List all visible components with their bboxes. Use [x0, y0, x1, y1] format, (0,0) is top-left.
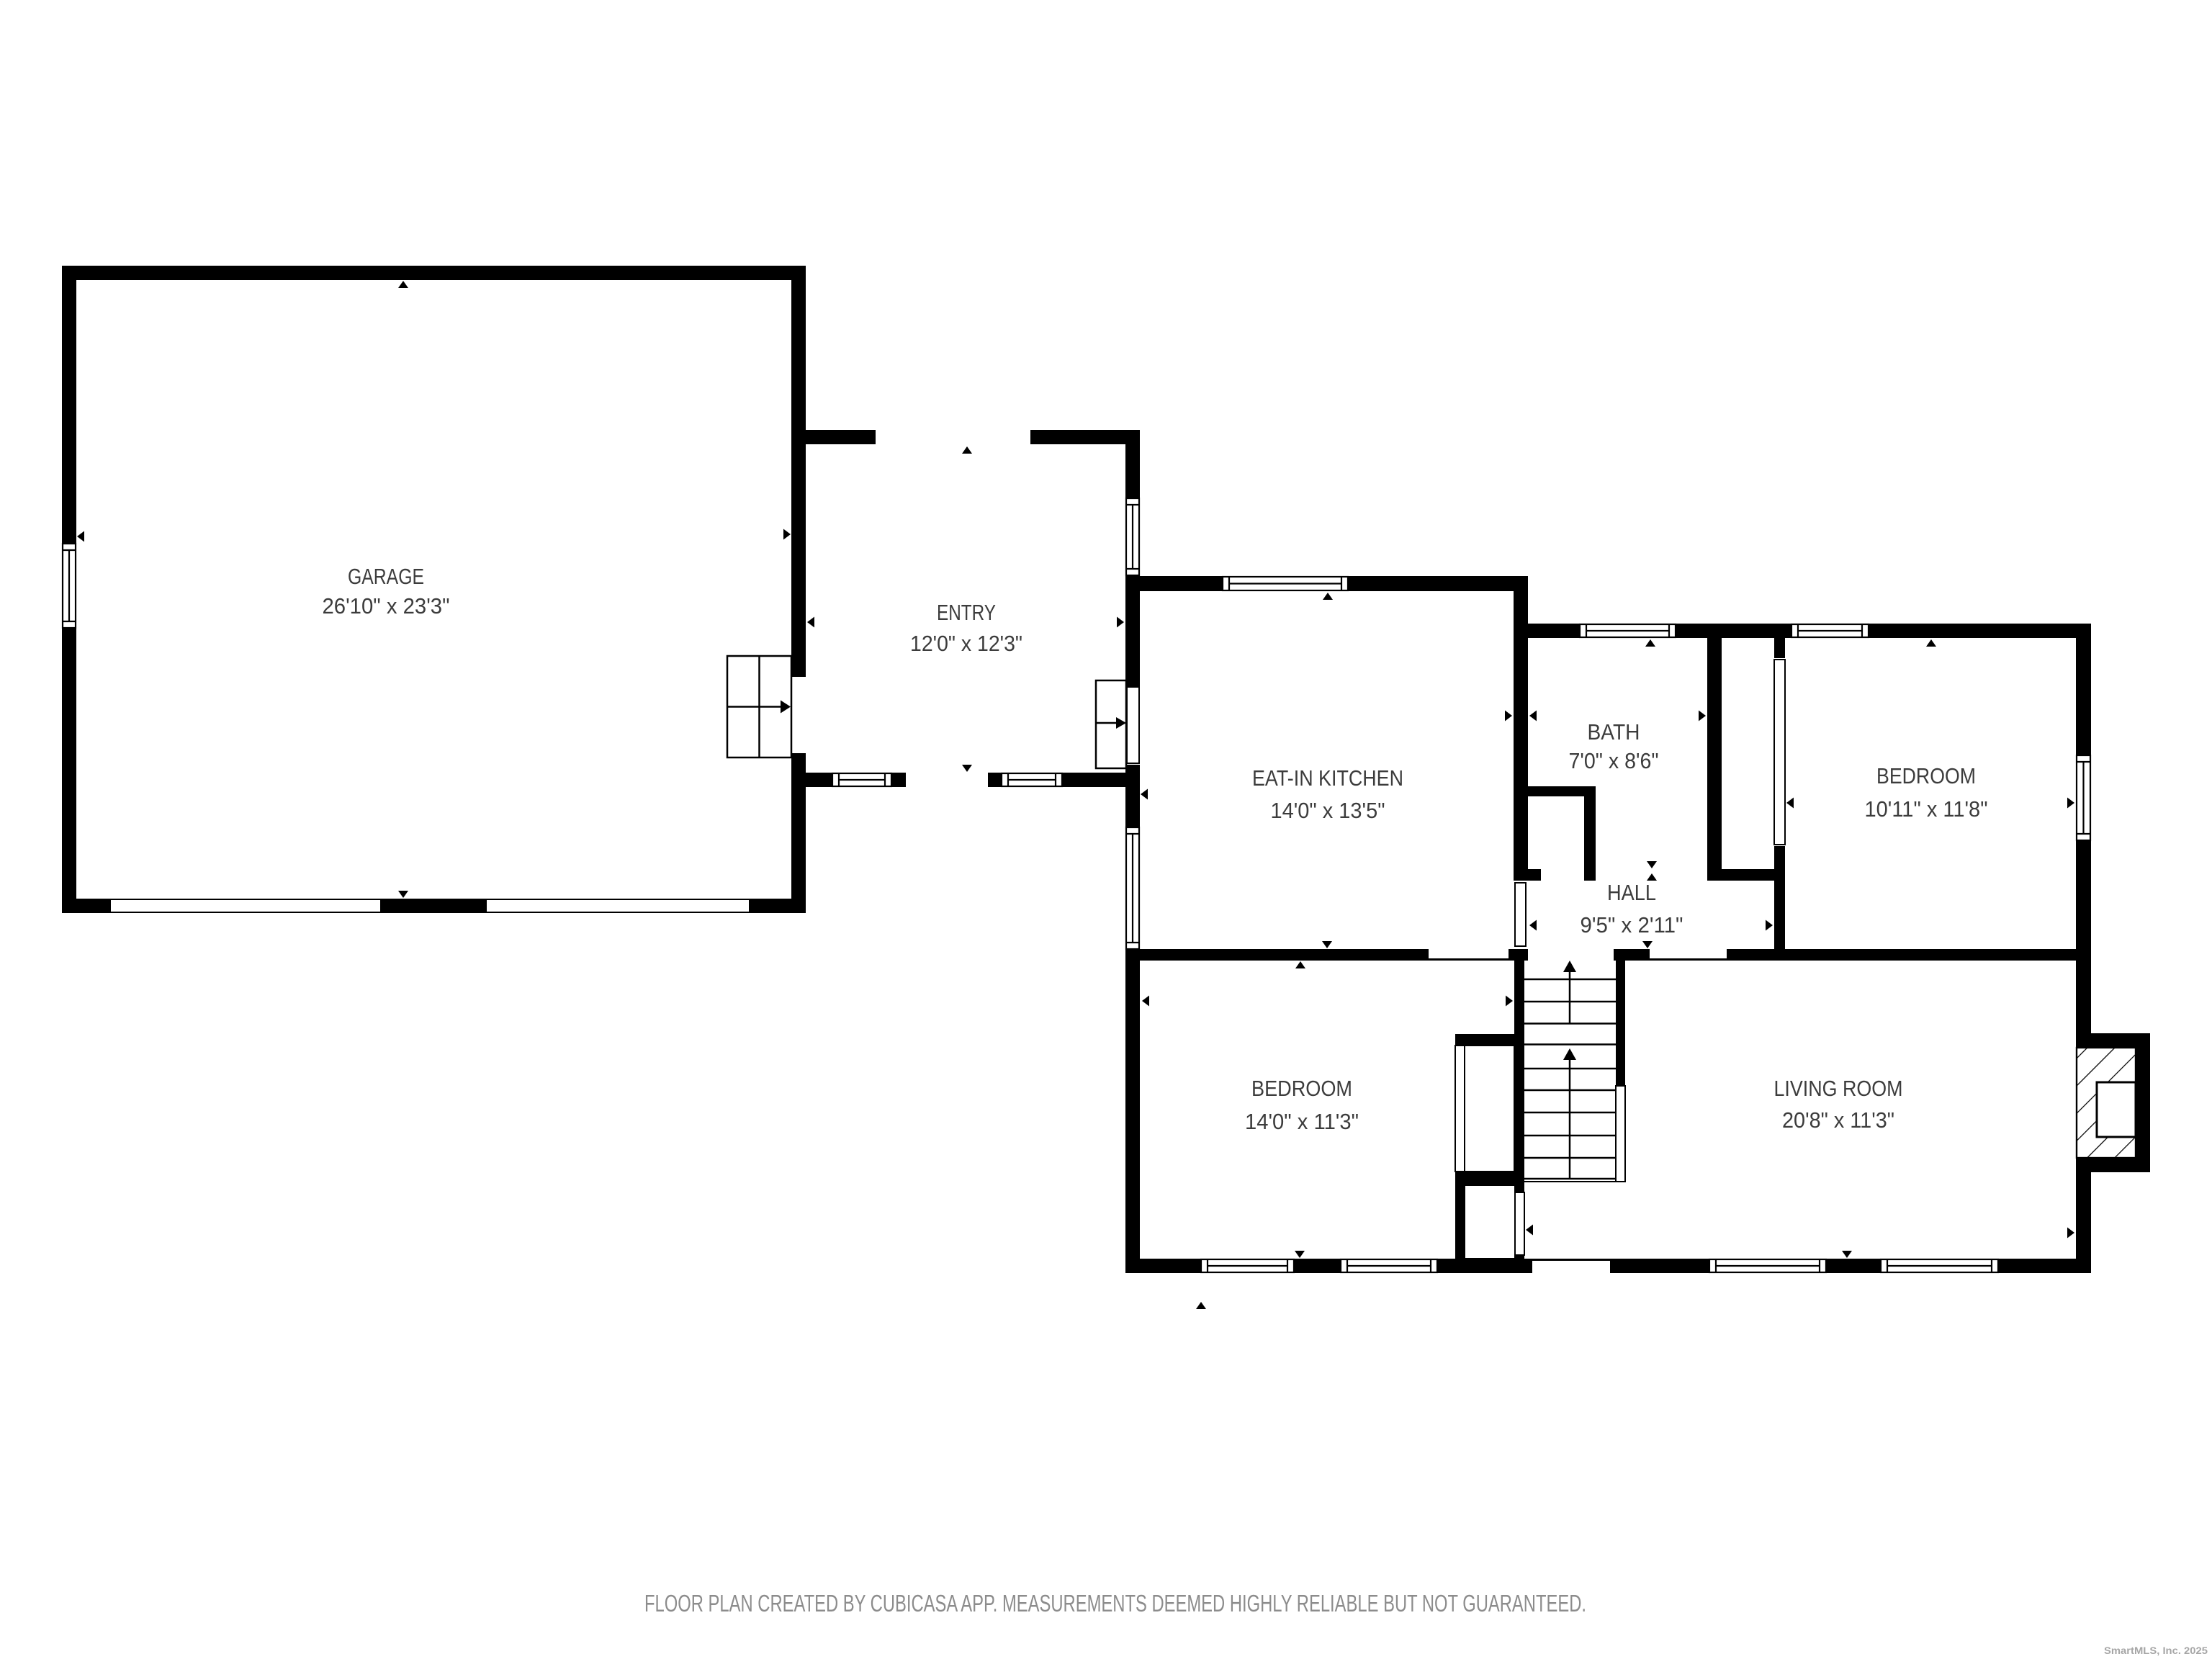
svg-text:BEDROOM: BEDROOM [1876, 763, 1976, 788]
svg-text:ENTRY: ENTRY [937, 600, 996, 625]
svg-text:HALL: HALL [1607, 880, 1656, 905]
svg-text:12'0" x 12'3": 12'0" x 12'3" [910, 631, 1022, 656]
svg-text:FLOOR PLAN CREATED BY CUBICASA: FLOOR PLAN CREATED BY CUBICASA APP. MEAS… [644, 1590, 1586, 1617]
svg-text:10'11" x 11'8": 10'11" x 11'8" [1865, 796, 1988, 822]
svg-text:EAT-IN KITCHEN: EAT-IN KITCHEN [1252, 765, 1403, 791]
svg-text:9'5" x 2'11": 9'5" x 2'11" [1581, 912, 1683, 938]
svg-text:7'0" x 8'6": 7'0" x 8'6" [1569, 748, 1659, 773]
svg-text:20'8" x 11'3": 20'8" x 11'3" [1782, 1107, 1894, 1133]
svg-text:26'10" x 23'3": 26'10" x 23'3" [323, 593, 450, 619]
svg-text:GARAGE: GARAGE [348, 564, 424, 589]
svg-text:BEDROOM: BEDROOM [1251, 1076, 1352, 1101]
svg-text:SmartMLS, Inc. 2025: SmartMLS, Inc. 2025 [2104, 1645, 2208, 1656]
svg-text:14'0" x 11'3": 14'0" x 11'3" [1245, 1109, 1359, 1134]
svg-text:14'0" x 13'5": 14'0" x 13'5" [1271, 798, 1385, 823]
svg-text:BATH: BATH [1588, 719, 1640, 745]
svg-text:LIVING ROOM: LIVING ROOM [1774, 1076, 1903, 1101]
